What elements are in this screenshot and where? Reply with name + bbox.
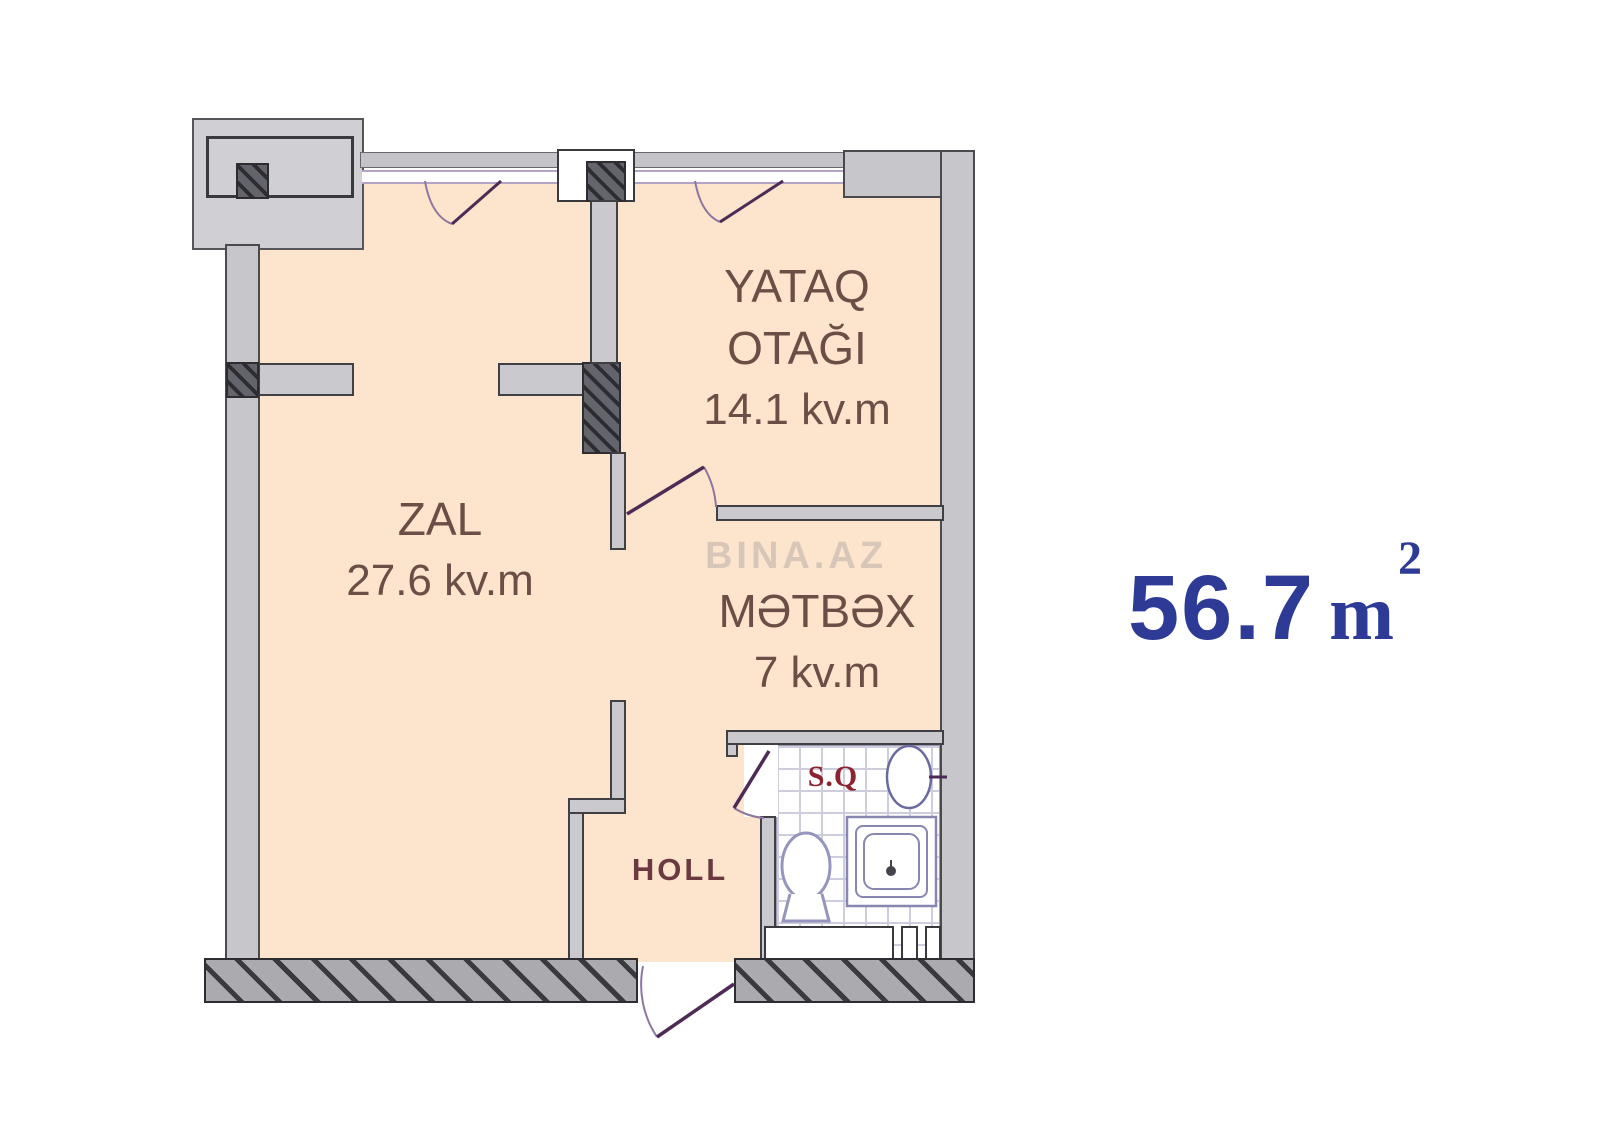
living-room-label: ZAL 27.6 kv.m — [346, 488, 533, 612]
stub-wall-left — [258, 363, 354, 396]
total-area: 56.7 m2 — [1128, 556, 1422, 661]
bathroom-door-jamb — [726, 743, 738, 757]
bedroom-kitchen-wall — [716, 505, 944, 521]
hall-wall-lower — [568, 812, 584, 962]
hall-wall-upper — [610, 700, 626, 812]
window-right — [633, 170, 845, 184]
bathroom-top-wall — [726, 730, 944, 745]
pipe-bar-2 — [925, 926, 941, 962]
bottom-wall-right — [734, 958, 975, 1003]
total-area-unit-letter: m — [1329, 569, 1394, 656]
kitchen-name: MƏTBƏX — [718, 580, 915, 642]
balcony-inner-outline — [206, 136, 354, 198]
watermark: BINA.AZ — [705, 535, 887, 578]
bedroom-door-wall — [610, 452, 626, 550]
total-area-value: 56.7 — [1128, 556, 1315, 661]
stub-left-column — [226, 362, 259, 398]
window-left — [362, 170, 560, 184]
floor-plan: YATAQ OTAĞI 14.1 kv.m ZAL 27.6 kv.m BINA… — [0, 0, 1600, 1131]
bedroom-name-line2: OTAĞI — [703, 317, 890, 379]
living-room-name: ZAL — [346, 488, 533, 550]
total-area-superscript: 2 — [1398, 532, 1422, 585]
floor-plan-image: YATAQ OTAĞI 14.1 kv.m ZAL 27.6 kv.m BINA… — [0, 0, 1600, 1131]
left-wall — [225, 244, 260, 962]
right-wall — [940, 150, 975, 962]
living-room-area: 27.6 kv.m — [346, 550, 533, 612]
top-column — [586, 161, 626, 202]
kitchen-area: 7 kv.m — [718, 642, 915, 704]
bedroom-area: 14.1 kv.m — [703, 379, 890, 441]
bedroom-label: YATAQ OTAĞI 14.1 kv.m — [703, 255, 890, 441]
bathroom-door-opening — [744, 745, 778, 817]
total-area-unit: m2 — [1329, 568, 1422, 658]
balcony-column — [236, 163, 269, 199]
zal-bedroom-wall — [590, 200, 618, 364]
stub-wall-mid — [498, 363, 586, 396]
bathroom-cabinet — [764, 926, 894, 962]
entrance-door — [641, 966, 734, 1037]
mid-column — [582, 362, 621, 454]
pipe-bar-1 — [901, 926, 918, 962]
hall-label: HOLL — [632, 852, 728, 888]
kitchen-label: MƏTBƏX 7 kv.m — [718, 580, 915, 704]
bottom-wall-left — [204, 958, 638, 1003]
bedroom-name-line1: YATAQ — [703, 255, 890, 317]
bathroom-label: S.Q — [808, 760, 859, 794]
